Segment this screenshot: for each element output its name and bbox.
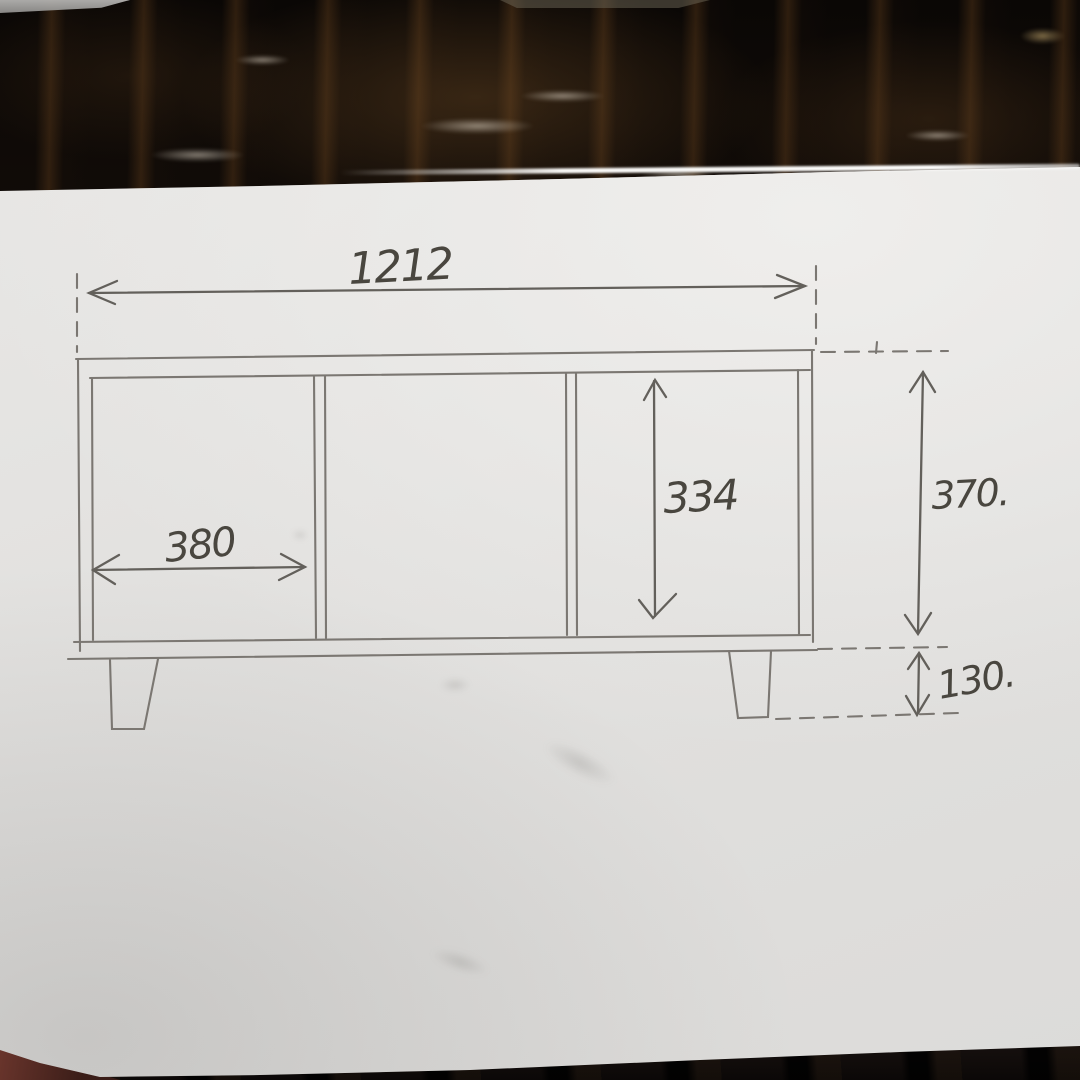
bottom-board-outer-line xyxy=(68,650,817,659)
dimension-carcass-height: 370. xyxy=(818,342,1009,649)
extension-line-bottom xyxy=(776,713,958,719)
right-leg xyxy=(729,651,771,718)
dimension-label-compartment-width: 380 xyxy=(162,519,237,572)
bottom-board-inner-line xyxy=(74,635,810,642)
dimension-left-compartment: 380 xyxy=(93,519,305,584)
divider-1-right-line xyxy=(325,376,326,638)
right-panel-outer-line xyxy=(812,351,813,642)
left-panel-outer-line xyxy=(78,360,80,651)
dimension-leg-height: 130. xyxy=(776,651,1017,719)
right-panel-inner-line xyxy=(798,370,799,635)
dimension-label-opening-height: 334 xyxy=(662,470,739,523)
dimension-line xyxy=(918,654,919,713)
top-board-outer-line xyxy=(76,350,814,359)
dimension-label-carcass-height: 370. xyxy=(930,470,1009,518)
left-panel-inner-line xyxy=(92,378,93,640)
dimension-overall-width: 1212 xyxy=(77,239,816,352)
extension-line-top xyxy=(821,351,948,352)
dimension-label-leg-height: 130. xyxy=(934,651,1017,708)
divider-2-right-line xyxy=(576,373,577,635)
divider-1-left-line xyxy=(314,376,316,638)
arrowhead-bottom xyxy=(639,594,676,618)
photo-scene: 1212 380 334 370. xyxy=(0,0,1080,1080)
extension-tick xyxy=(876,342,877,353)
dimension-label-overall-width: 1212 xyxy=(347,239,454,295)
divider-2-left-line xyxy=(566,373,567,635)
dimension-line xyxy=(918,372,923,633)
cabinet-dimension-sketch: 1212 380 334 370. xyxy=(0,0,1080,1080)
extension-line-bottom xyxy=(818,647,947,649)
left-leg xyxy=(110,659,158,729)
dimension-opening-height: 334 xyxy=(639,380,739,618)
dimension-line xyxy=(654,381,655,616)
top-board-inner-line xyxy=(90,370,810,378)
